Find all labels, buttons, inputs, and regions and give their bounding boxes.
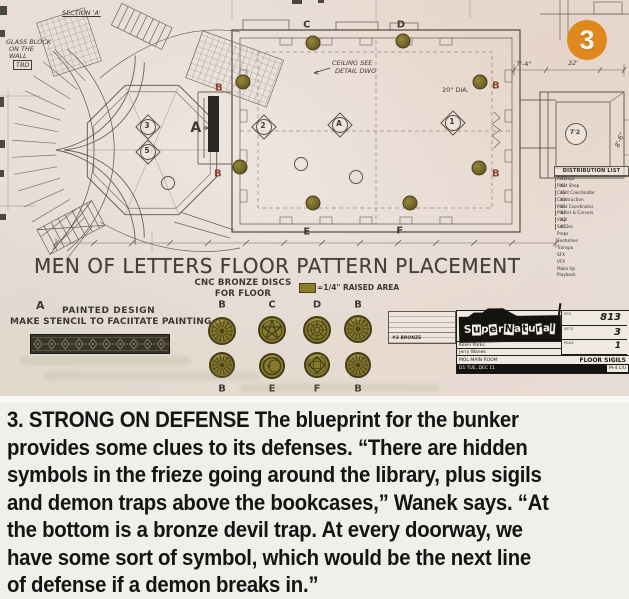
bronze-wall-disc <box>236 75 251 90</box>
bleed-through-smudge <box>240 384 440 391</box>
bronze-disc-sigil-e <box>258 352 286 380</box>
plan-label-b: B <box>215 83 223 94</box>
scan-edge-mark <box>0 214 6 220</box>
distribution-list: DISTRIBUTION LIST Art DeptX1Paint ShopX1… <box>554 166 629 177</box>
sets-value: 3 <box>614 327 621 338</box>
magazine-page: BBCDBBEFASECTION 'A'GLASS BLOCKON THEWAL… <box>0 0 629 599</box>
bronze-wall-disc <box>306 196 321 211</box>
caption-line: symbols in the frieze going around the l… <box>7 461 629 489</box>
sets-cell: SETS 3 <box>561 326 627 340</box>
legend-cnc-line2: FOR FLOOR <box>188 289 298 299</box>
logo-letter: N <box>503 323 514 335</box>
frieze-strip <box>30 334 170 354</box>
annotation: DETAIL DWG <box>335 67 376 75</box>
annotation: 32' <box>568 59 578 67</box>
bronze-wall-disc <box>473 75 488 90</box>
disc-label-c: C <box>268 300 275 311</box>
bleed-through-smudge <box>44 372 259 380</box>
bronze-wall-disc <box>233 160 248 175</box>
scan-edge-mark <box>0 6 7 15</box>
set-row: MOL MAIN ROOM FLOOR SIGILS <box>457 355 629 364</box>
drawing-title: MEN OF LETTERS FLOOR PATTERN PLACEMENT <box>34 254 468 278</box>
disc-label-b: B <box>218 300 226 311</box>
bronze-wall-disc <box>472 161 487 176</box>
logo-letter: l <box>550 323 555 334</box>
annotation: 7'-4" <box>516 60 531 68</box>
scan-edge-mark <box>0 30 5 37</box>
sets-label: SETS <box>564 327 574 331</box>
caption-line: and demon traps above the bookcases,” Wa… <box>7 489 629 517</box>
scan-edge-mark <box>318 0 324 3</box>
date-value: D1 TUE, DEC 11 <box>459 364 495 373</box>
logo-letter: S <box>464 324 473 336</box>
bronze-wall-disc <box>306 36 321 51</box>
caption-line: 3. STRONG ON DEFENSE The blueprint for t… <box>7 406 629 434</box>
distribution-list-title: DISTRIBUTION LIST <box>555 167 628 176</box>
drawn-by: M-4 LIU <box>607 365 628 372</box>
crew-row-1: Kevin Parks <box>457 341 561 348</box>
disc-label-b: B <box>354 300 362 311</box>
legend-raised-area: =1/4" RAISED AREA <box>317 283 399 292</box>
caption-line: the bottom is a bronze devil trap. At ev… <box>7 516 629 544</box>
caption-block: 3. STRONG ON DEFENSE The blueprint for t… <box>0 403 629 599</box>
plan-label-b: B <box>214 169 222 180</box>
supernatural-logo: SuperNatural <box>459 315 561 343</box>
crew-row-2: Jerry Wanek <box>457 348 561 355</box>
car-silhouette-icon <box>467 308 519 318</box>
page-label: PAGE <box>564 341 574 345</box>
page-value: 1 <box>615 341 621 351</box>
disc-label-b: B <box>218 384 226 395</box>
annotation: SECTION 'A' <box>62 9 101 17</box>
episode-cell: EPS 813 <box>561 311 627 326</box>
blueprint-scan: BBCDBBEFASECTION 'A'GLASS BLOCKON THEWAL… <box>0 0 629 397</box>
plan-label-a: A <box>190 120 201 136</box>
bronze-disc-sigil-f <box>303 351 331 379</box>
disc-label-d: D <box>313 300 321 311</box>
page-cell: PAGE 1 <box>561 340 627 355</box>
bronze-wall-disc <box>403 196 418 211</box>
caption-line: provides some clues to its defenses. “Th… <box>7 434 629 462</box>
figure-number-badge: 3 <box>567 20 607 60</box>
caption-text: 3. STRONG ON DEFENSE The blueprint for t… <box>7 406 629 599</box>
legend-cnc-line1: CNC BRONZE DISCS <box>188 278 298 288</box>
plan-label-b: B <box>492 169 500 180</box>
spec-table: #3 BRONZE <box>388 311 456 344</box>
painted-design-label-a: A <box>36 299 45 312</box>
title-block: SuperNatural EPS 813 SETS 3 PAGE 1 Kevin… <box>456 310 629 374</box>
annotation: WALL <box>9 52 27 60</box>
bronze-disc-sigil-b <box>344 351 372 379</box>
eps-value: 813 <box>600 312 621 323</box>
raised-area-swatch <box>299 283 316 293</box>
logo-letter: e <box>489 323 498 335</box>
bleed-through-smudge <box>20 356 190 365</box>
date-row: D1 TUE, DEC 11 M-4 LIU <box>457 364 629 373</box>
plan-label-d: D <box>397 20 406 31</box>
bronze-wall-disc <box>396 34 411 49</box>
bronze-disc-sigil-c <box>257 315 287 345</box>
plan-label-e: E <box>303 227 310 238</box>
scan-edge-mark <box>0 140 5 148</box>
bronze-disc-sigil-b <box>343 314 373 344</box>
plan-label-c: C <box>303 20 311 31</box>
page-gap <box>0 396 629 403</box>
spec-bronze-note: #3 BRONZE <box>392 336 421 341</box>
bronze-disc-sigil-d <box>302 315 332 345</box>
painted-design-line2: MAKE STENCIL TO FACIITATE PAINTING <box>10 317 212 327</box>
caption-line: have some sort of symbol, which would be… <box>7 544 629 572</box>
plan-label-b: B <box>492 81 500 92</box>
scan-edge-mark <box>0 170 4 177</box>
logo-letter: a <box>514 323 522 335</box>
annotation: 20" DIA. <box>442 86 469 94</box>
eps-label: EPS <box>564 312 571 316</box>
scan-edge-mark <box>292 0 302 4</box>
scan-edge-mark <box>0 97 4 107</box>
plan-label-f: F <box>396 226 403 237</box>
logo-letter: r <box>498 324 503 335</box>
painted-design-line1: PAINTED DESIGN <box>62 306 155 316</box>
annotation: TBD <box>13 60 32 70</box>
annotation: CEILING SEE <box>332 59 372 67</box>
caption-line: of defense if a demon breaks in.” <box>7 571 629 599</box>
